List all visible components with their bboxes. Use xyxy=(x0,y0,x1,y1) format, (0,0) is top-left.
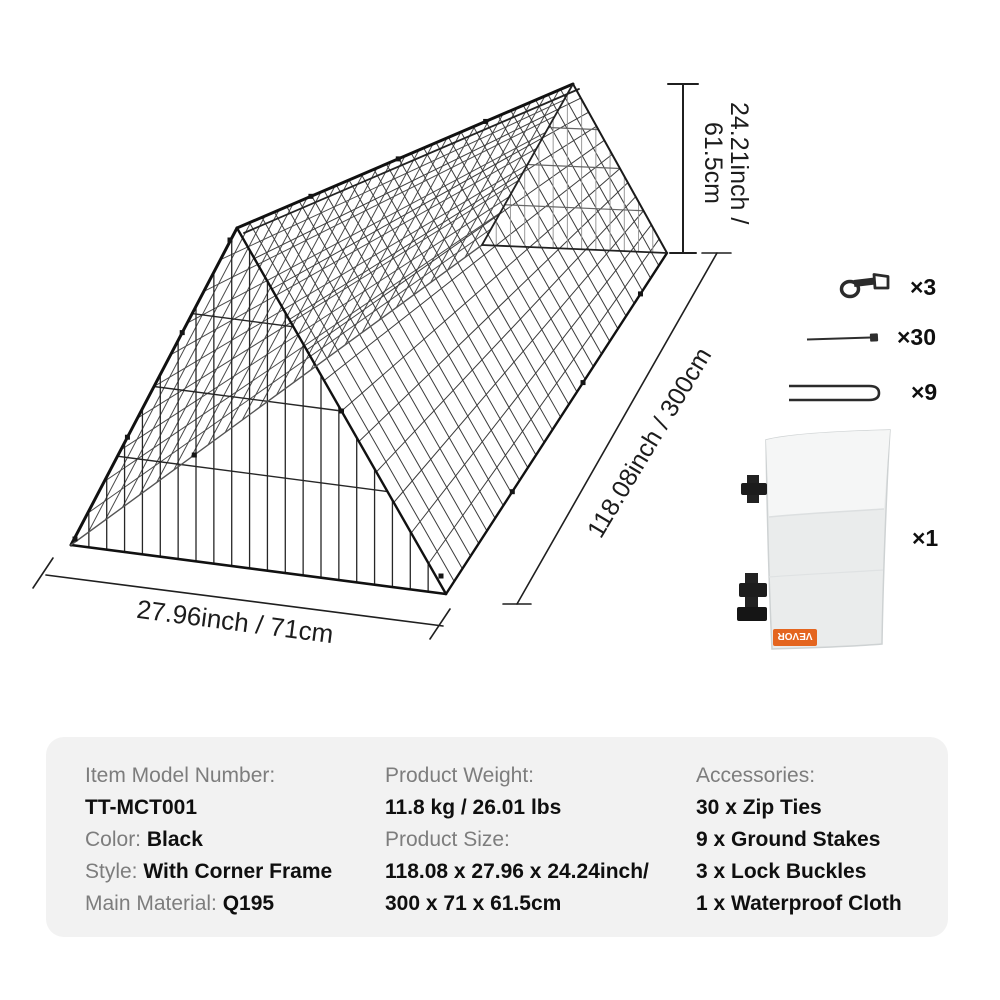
spec-row: 30 x Zip Ties xyxy=(696,792,902,824)
zip-tie-icon xyxy=(806,331,888,345)
spec-row: 9 x Ground Stakes xyxy=(696,824,902,856)
spec-row: 11.8 kg / 26.01 lbs xyxy=(385,792,649,824)
spec-row: Color: Black xyxy=(85,824,332,856)
ground-stake-icon xyxy=(789,380,885,404)
product-infographic: 24.21inch / 61.5cm 118.08inch / 300cm 27… xyxy=(0,0,1000,1000)
spec-row: 300 x 71 x 61.5cm xyxy=(385,888,649,920)
ground-stake-qty: ×9 xyxy=(911,381,937,404)
spec-row: Item Model Number: xyxy=(85,760,332,792)
vevor-tag-text: VEVOR xyxy=(777,630,813,641)
spec-column-weight-size: Product Weight: 11.8 kg / 26.01 lbs Prod… xyxy=(385,760,649,920)
zip-tie-qty: ×30 xyxy=(897,326,936,349)
spec-row: TT-MCT001 xyxy=(85,792,332,824)
spec-column-accessories: Accessories: 30 x Zip Ties 9 x Ground St… xyxy=(696,760,902,920)
spec-row: 1 x Waterproof Cloth xyxy=(696,888,902,920)
spec-column-model: Item Model Number: TT-MCT001 Color: Blac… xyxy=(85,760,332,920)
spec-row: Style: With Corner Frame xyxy=(85,856,332,888)
lock-buckle-qty: ×3 xyxy=(910,276,936,299)
height-dimension-line2: 61.5cm xyxy=(700,82,726,244)
height-dimension-line1: 24.21inch / xyxy=(726,82,752,244)
waterproof-cloth-qty: ×1 xyxy=(912,527,938,550)
waterproof-cloth-image: VEVOR xyxy=(733,417,905,663)
lock-buckle-icon xyxy=(839,271,893,301)
height-dimension-label: 24.21inch / 61.5cm xyxy=(700,82,752,244)
spec-row: Accessories: xyxy=(696,760,902,792)
spec-row: Product Weight: xyxy=(385,760,649,792)
spec-row: 3 x Lock Buckles xyxy=(696,856,902,888)
spec-row: 118.08 x 27.96 x 24.24inch/ xyxy=(385,856,649,888)
spec-panel: Item Model Number: TT-MCT001 Color: Blac… xyxy=(46,737,948,937)
spec-row: Main Material: Q195 xyxy=(85,888,332,920)
spec-row: Product Size: xyxy=(385,824,649,856)
